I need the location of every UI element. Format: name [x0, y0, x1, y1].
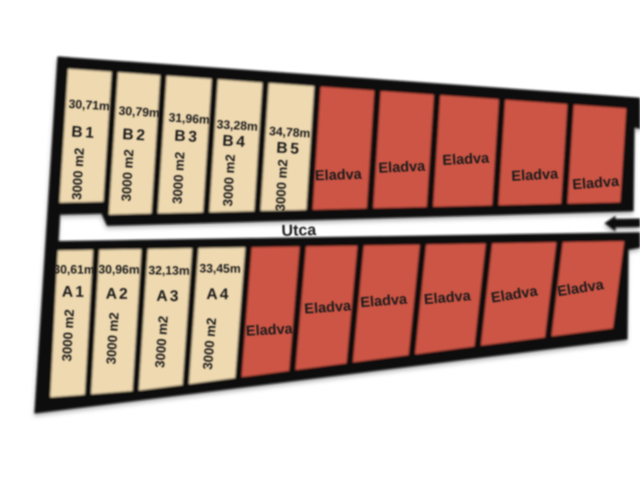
svg-text:B 5: B 5 — [276, 140, 300, 158]
svg-text:B 1: B 1 — [71, 124, 95, 142]
svg-text:3000 m2: 3000 m2 — [59, 309, 77, 362]
svg-text:3000 m2: 3000 m2 — [69, 147, 87, 200]
svg-text:30,96m: 30,96m — [98, 262, 140, 276]
svg-text:33,28m: 33,28m — [216, 117, 258, 134]
svg-text:30,71m: 30,71m — [68, 97, 110, 114]
svg-text:B 4: B 4 — [222, 133, 246, 151]
svg-text:A 3: A 3 — [156, 288, 178, 305]
svg-text:B 3: B 3 — [174, 128, 198, 146]
svg-text:Eladva: Eladva — [315, 167, 363, 185]
svg-text:30,61m: 30,61m — [53, 262, 95, 276]
svg-text:3000 m2: 3000 m2 — [220, 154, 238, 207]
svg-text:32,13m: 32,13m — [148, 263, 190, 277]
svg-text:Eladva: Eladva — [246, 321, 294, 339]
svg-text:Eladva: Eladva — [442, 151, 490, 169]
svg-text:34,78m: 34,78m — [269, 124, 311, 141]
svg-text:3000 m2: 3000 m2 — [170, 151, 188, 204]
svg-text:Eladva: Eladva — [378, 159, 426, 177]
svg-text:30,79m: 30,79m — [118, 104, 160, 121]
svg-text:3000 m2: 3000 m2 — [119, 149, 137, 202]
svg-text:A 4: A 4 — [206, 286, 228, 303]
svg-text:Eladva: Eladva — [304, 298, 353, 317]
svg-text:31,96m: 31,96m — [168, 110, 210, 127]
svg-text:A 1: A 1 — [62, 284, 84, 301]
svg-text:B 2: B 2 — [122, 126, 145, 144]
svg-text:3000 m2: 3000 m2 — [103, 312, 121, 365]
svg-text:Utca: Utca — [281, 222, 316, 240]
svg-text:3000 m2: 3000 m2 — [273, 159, 291, 212]
svg-text:A 2: A 2 — [106, 286, 127, 303]
svg-text:Eladva: Eladva — [511, 166, 559, 184]
svg-text:33,45m: 33,45m — [199, 261, 241, 275]
